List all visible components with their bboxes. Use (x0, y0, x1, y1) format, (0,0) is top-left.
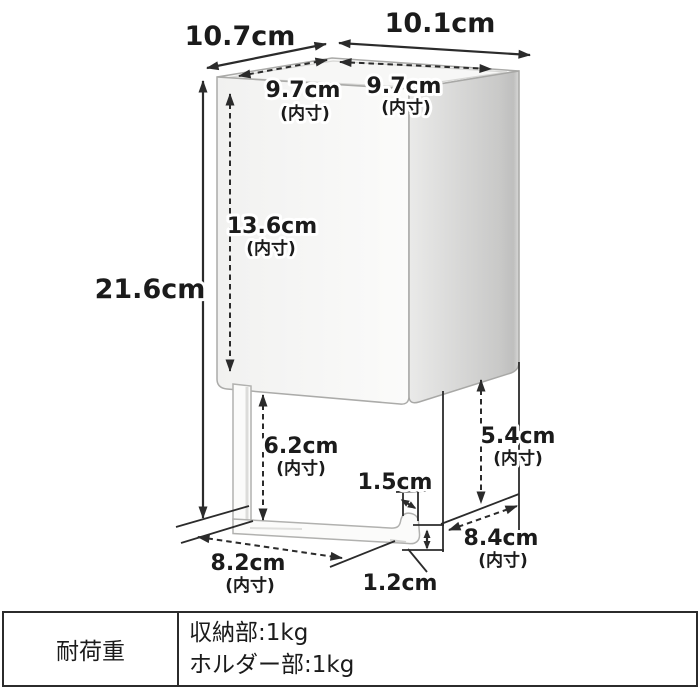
spec-value-storage: 収納部:1kg (189, 617, 696, 649)
label-inner-top-right-note: (内寸) (381, 97, 431, 118)
label-bar-length-note: (内寸) (225, 575, 275, 596)
label-inner-top-right: 9.7cm (367, 74, 442, 99)
arrow-hook-gap (402, 500, 415, 508)
label-gap-left: 6.2cm (264, 434, 339, 459)
label-holder-depth: 8.4cm (464, 526, 539, 551)
arrow-top-right-edge (339, 43, 530, 55)
extension-bar-length-right (330, 541, 395, 567)
label-gap-left-note: (内寸) (276, 458, 326, 479)
label-inner-height: 13.6cm (227, 214, 317, 239)
spec-table-header-label: 耐荷重 (56, 632, 125, 666)
label-inner-top-left: 9.7cm (266, 78, 341, 103)
label-bar-length: 8.2cm (211, 551, 286, 576)
label-bar-thickness: 1.2cm (363, 571, 438, 596)
holder-frame (233, 384, 420, 544)
label-inner-top-left-note: (内寸) (280, 103, 330, 124)
product-dimension-figure: 10.7cm 10.1cm 21.6cm 9.7cm (内寸) 9.7cm (内… (0, 0, 700, 700)
label-gap-right-note: (内寸) (493, 448, 543, 469)
label-top-right-edge: 10.1cm (385, 8, 496, 39)
dimension-diagram: 10.7cm 10.1cm 21.6cm 9.7cm (内寸) 9.7cm (内… (0, 0, 700, 610)
spec-table-value-cell: 収納部:1kg ホルダー部:1kg (179, 613, 696, 685)
holder-bar-shade (250, 528, 302, 529)
label-hook-gap: 1.5cm (358, 470, 433, 495)
spec-table: 耐荷重 収納部:1kg ホルダー部:1kg (2, 611, 698, 687)
leader-bar-thickness (408, 549, 427, 572)
label-holder-depth-note: (内寸) (478, 550, 528, 571)
box-right-face (409, 71, 519, 403)
label-inner-height-note: (内寸) (246, 238, 296, 259)
label-top-left-edge: 10.7cm (185, 21, 296, 52)
label-gap-right: 5.4cm (481, 424, 556, 449)
spec-value-holder: ホルダー部:1kg (189, 649, 696, 681)
spec-table-header-cell: 耐荷重 (4, 613, 179, 685)
label-height: 21.6cm (95, 274, 206, 305)
